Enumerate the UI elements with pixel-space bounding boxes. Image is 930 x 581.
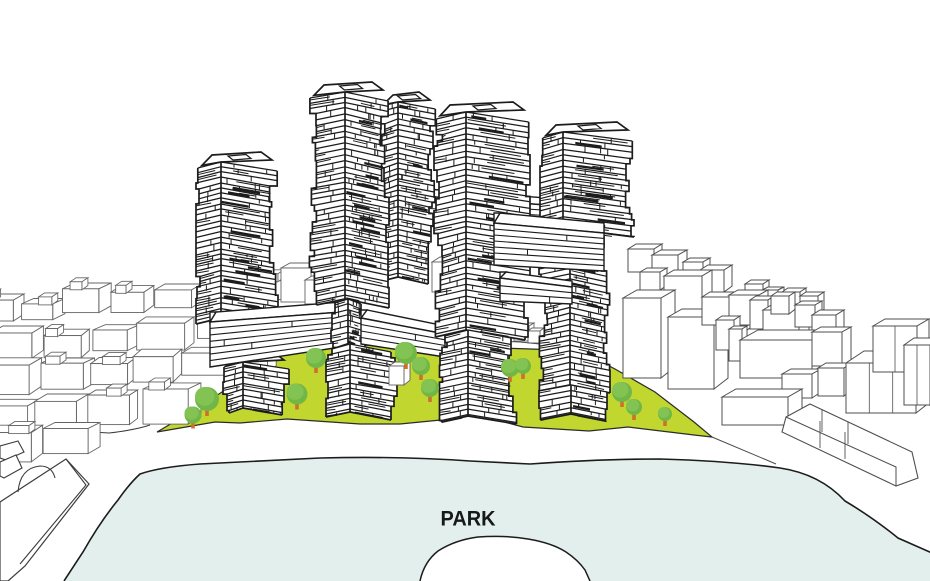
svg-text:PARK: PARK (441, 507, 496, 531)
